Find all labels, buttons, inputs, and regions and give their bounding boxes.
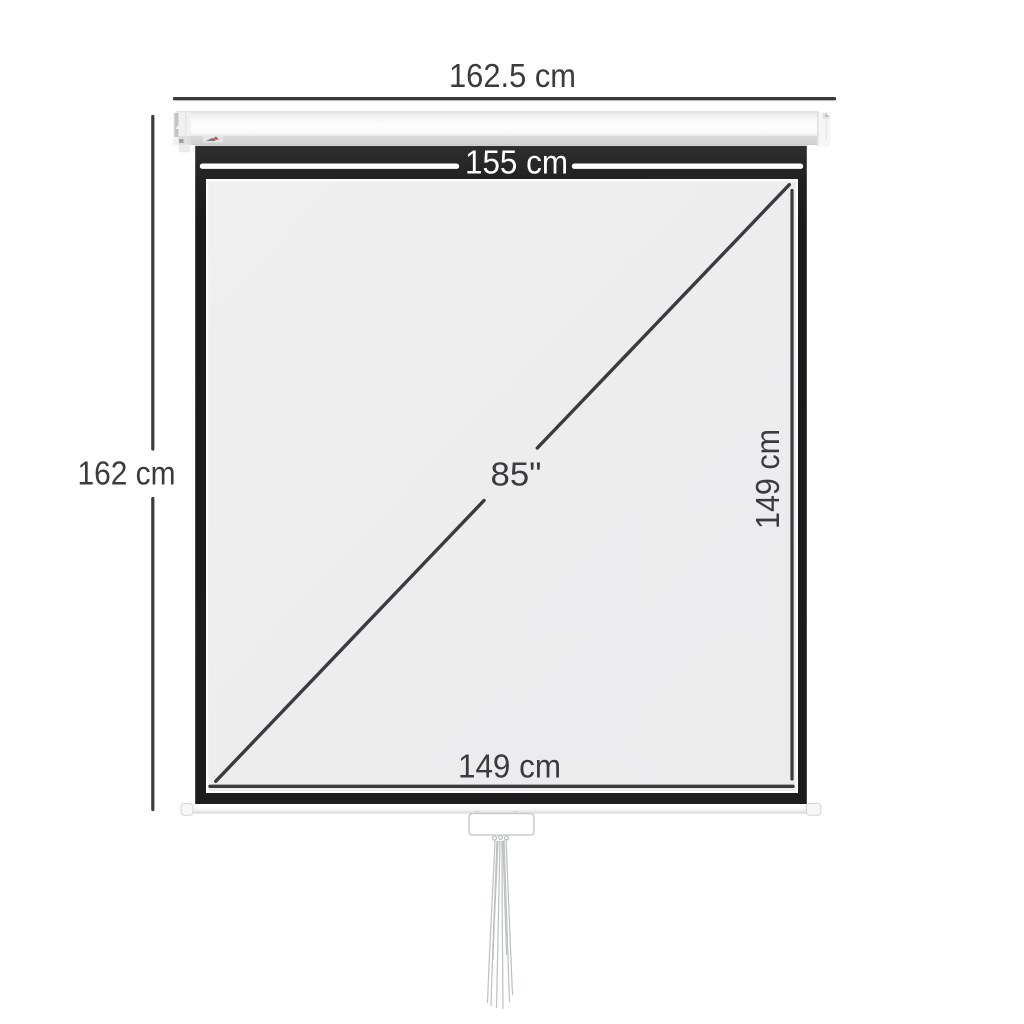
svg-text:155 cm: 155 cm: [465, 144, 568, 181]
svg-text:149 cm: 149 cm: [749, 429, 786, 529]
svg-text:85": 85": [491, 456, 542, 493]
svg-text:162 cm: 162 cm: [78, 455, 176, 492]
svg-text:149 cm: 149 cm: [458, 748, 561, 785]
svg-text:162.5 cm: 162.5 cm: [449, 57, 576, 94]
